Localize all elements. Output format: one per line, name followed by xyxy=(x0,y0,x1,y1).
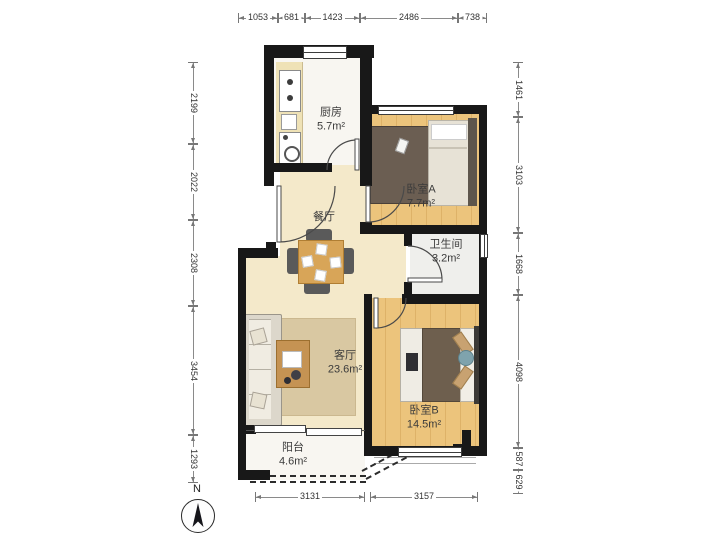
room-area: 23.6m² xyxy=(328,363,362,377)
bedroom-b-label: 卧室B 14.5m² xyxy=(407,404,441,433)
floorplan-canvas: 厨房 5.7m² 卧室A 7.7m² 餐厅 卫生间 3.2m² 客厅 23.6m… xyxy=(0,0,720,540)
room-name: 卫生间 xyxy=(430,238,463,252)
kitchen-door-arc xyxy=(327,140,357,170)
dim-right-3: 1668 xyxy=(512,233,524,295)
room-area: 14.5m² xyxy=(407,418,441,432)
dim-bottom-1: 3131 xyxy=(255,491,365,503)
bedroom-a-door-arc xyxy=(368,186,404,222)
dim-label: 2022 xyxy=(188,170,198,194)
dim-right-1: 1461 xyxy=(512,62,524,117)
entry-door-leaf xyxy=(277,186,281,242)
dim-label: 3103 xyxy=(513,163,523,187)
dim-top-3: 1423 xyxy=(305,12,360,24)
dim-label: 3131 xyxy=(298,492,322,502)
dim-right-2: 3103 xyxy=(512,117,524,233)
dim-left-2: 2022 xyxy=(187,144,199,220)
room-name: 卧室A xyxy=(406,183,435,197)
dim-label: 1461 xyxy=(513,77,523,101)
room-area: 4.6m² xyxy=(279,455,307,469)
dim-label: 2486 xyxy=(397,13,421,23)
dim-label: 2308 xyxy=(188,251,198,275)
bedroom-a-door-leaf xyxy=(366,186,370,222)
dim-label: 2199 xyxy=(188,91,198,115)
dim-label: 1053 xyxy=(246,13,270,23)
dim-label: 1293 xyxy=(188,447,198,471)
compass-icon xyxy=(181,499,215,533)
bathroom-door-leaf xyxy=(408,278,442,282)
dim-left-4: 3454 xyxy=(187,306,199,435)
dim-top-2: 681 xyxy=(278,12,305,24)
kitchen-label: 厨房 5.7m² xyxy=(317,106,345,135)
room-name: 厨房 xyxy=(317,106,345,120)
dim-label: 3157 xyxy=(412,492,436,502)
room-name: 阳台 xyxy=(279,441,307,455)
dim-label: 1423 xyxy=(320,13,344,23)
room-name: 卧室B xyxy=(407,404,441,418)
dining-label: 餐厅 xyxy=(313,210,335,224)
room-area: 5.7m² xyxy=(317,120,345,134)
room-area: 3.2m² xyxy=(430,252,463,266)
room-name: 餐厅 xyxy=(313,210,335,224)
kitchen-door-leaf xyxy=(355,139,359,170)
compass-north-label: N xyxy=(193,483,201,495)
compass-needle-icon xyxy=(193,503,204,527)
dim-top-4: 2486 xyxy=(360,12,458,24)
dim-left-5: 1293 xyxy=(187,435,199,483)
room-area: 7.7m² xyxy=(406,197,435,211)
dim-label: 629 xyxy=(513,472,523,491)
dim-label: 681 xyxy=(282,13,301,23)
dim-label: 738 xyxy=(463,13,482,23)
bedroom-b-door-leaf xyxy=(374,298,378,328)
dim-label: 587 xyxy=(513,449,523,468)
dim-right-6: 629 xyxy=(512,470,524,494)
dim-bottom-2: 3157 xyxy=(370,491,478,503)
dim-left-3: 2308 xyxy=(187,220,199,306)
dim-right-4: 4098 xyxy=(512,295,524,448)
dim-label: 3454 xyxy=(188,358,198,382)
dim-label: 4098 xyxy=(513,359,523,383)
dim-label: 1668 xyxy=(513,252,523,276)
door-arcs xyxy=(0,0,720,540)
room-name: 客厅 xyxy=(328,349,362,363)
living-label: 客厅 23.6m² xyxy=(328,349,362,378)
balcony-label: 阳台 4.6m² xyxy=(279,441,307,470)
dim-top-1: 1053 xyxy=(238,12,278,24)
bathroom-label: 卫生间 3.2m² xyxy=(430,238,463,267)
bedroom-a-label: 卧室A 7.7m² xyxy=(406,183,435,212)
dim-right-5: 587 xyxy=(512,448,524,470)
bedroom-b-door-arc xyxy=(376,298,406,328)
dim-top-5: 738 xyxy=(458,12,487,24)
dim-left-1: 2199 xyxy=(187,62,199,144)
